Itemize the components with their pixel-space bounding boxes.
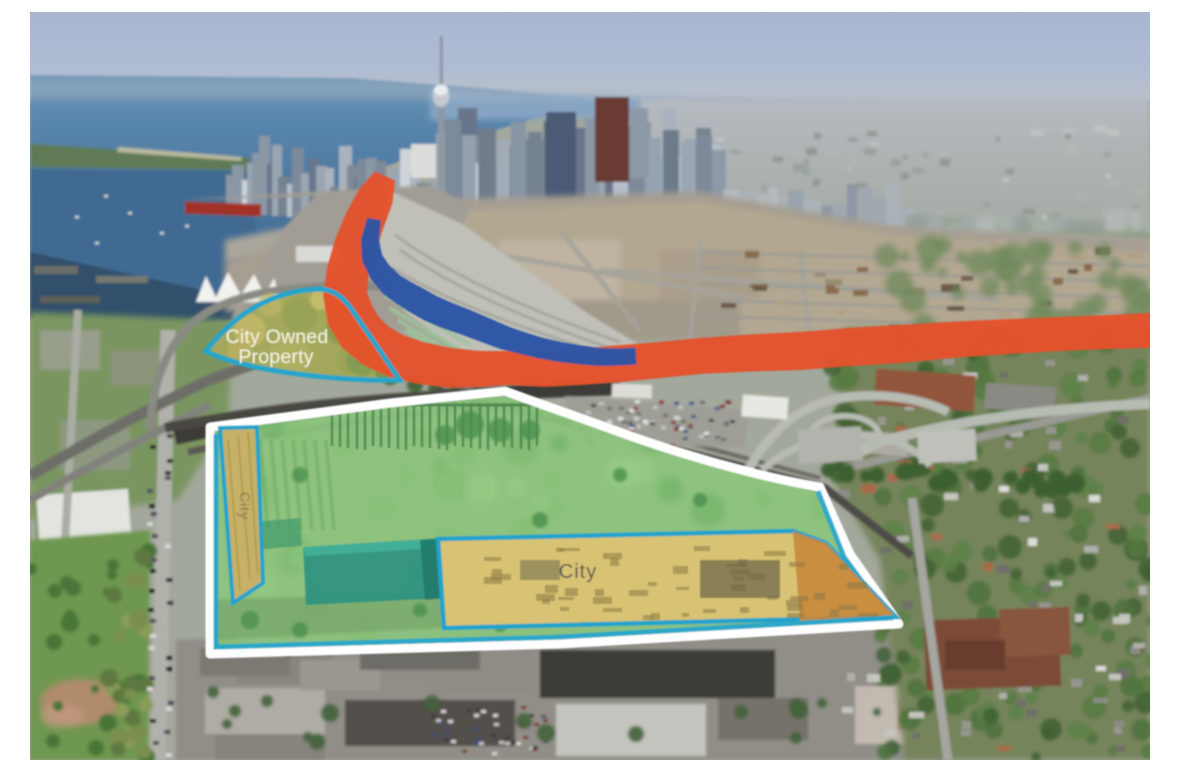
svg-text:City: City — [237, 492, 253, 520]
svg-text:Property: Property — [238, 346, 313, 368]
svg-text:City Owned: City Owned — [226, 326, 329, 348]
svg-text:City: City — [559, 561, 597, 583]
